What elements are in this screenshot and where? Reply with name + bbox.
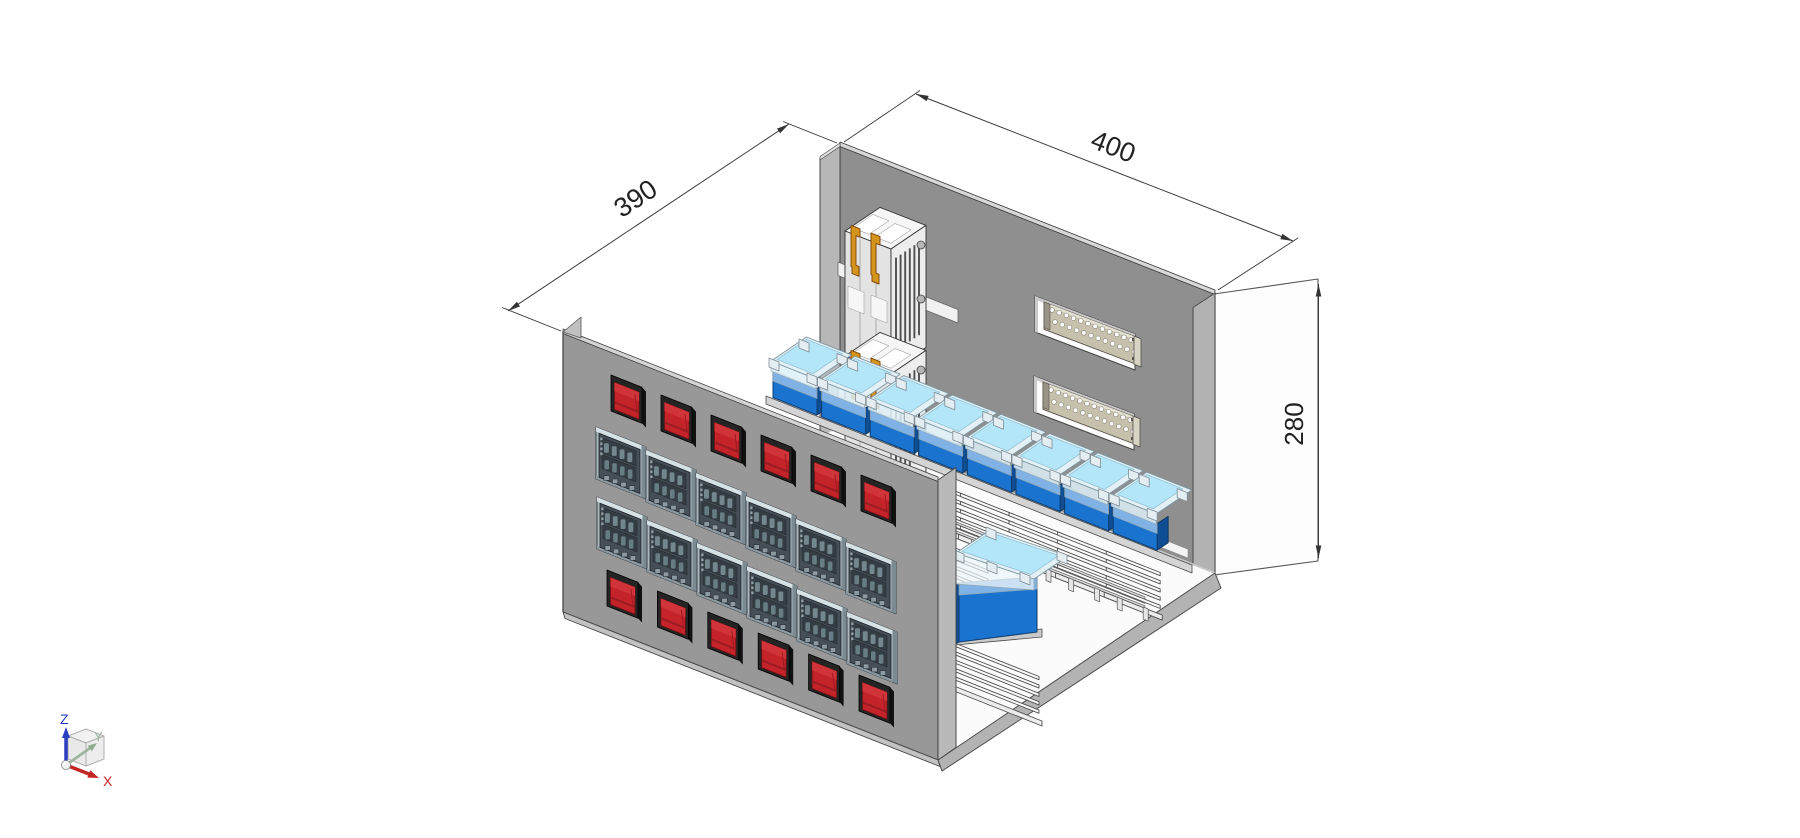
svg-text:280: 280 [1279, 402, 1309, 445]
svg-text:Y: Y [94, 729, 103, 744]
svg-text:Z: Z [60, 711, 69, 727]
svg-text:X: X [103, 773, 113, 789]
